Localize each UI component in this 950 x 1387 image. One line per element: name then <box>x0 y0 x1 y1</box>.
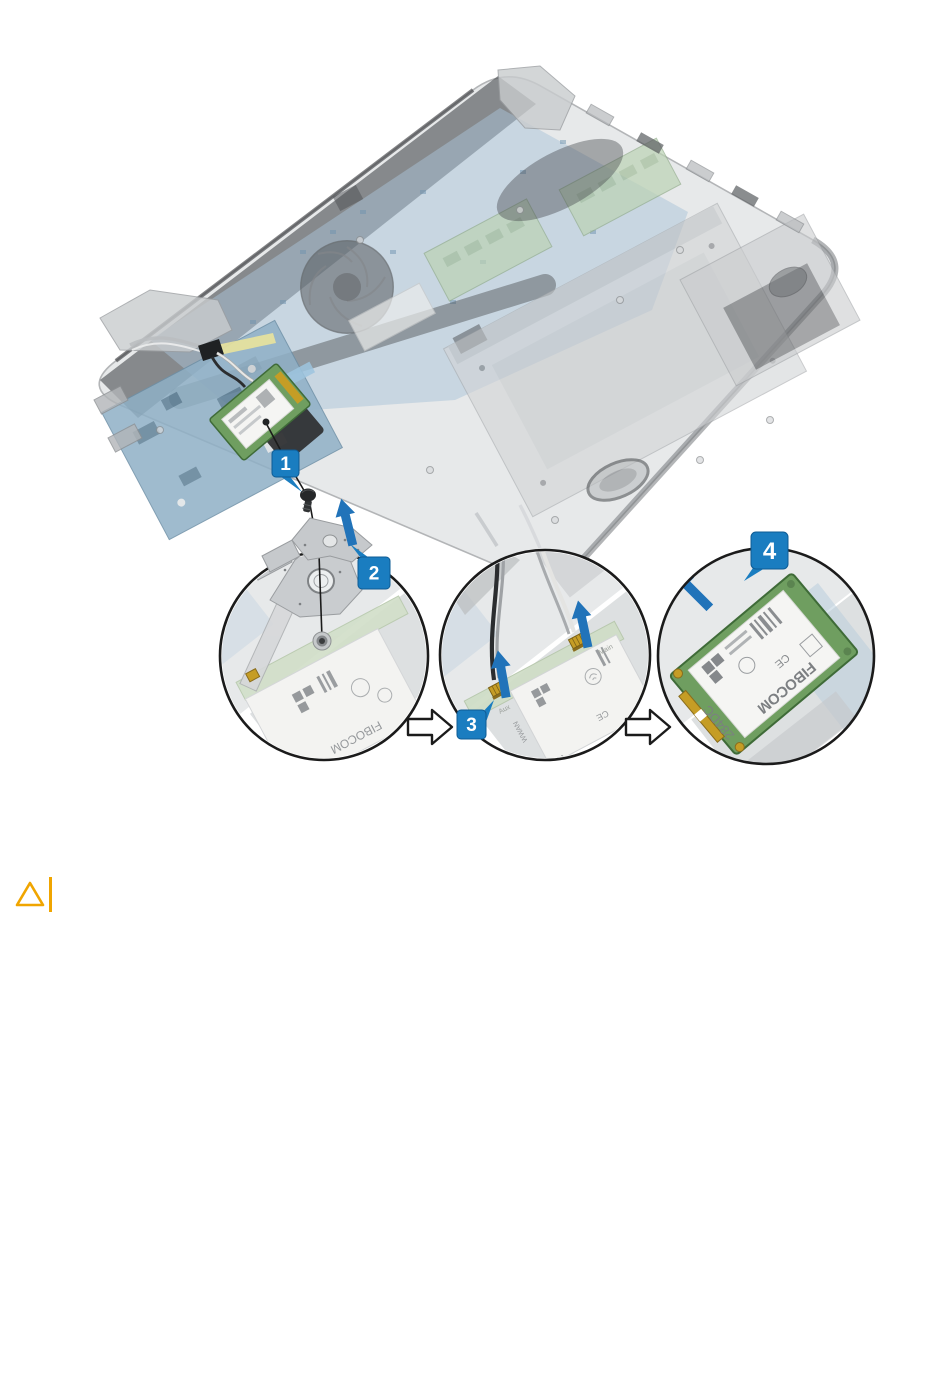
callout-3-label: 3 <box>466 715 477 736</box>
card-screw-hole <box>263 419 270 426</box>
screw <box>300 489 316 513</box>
zoom1-card-model-text: 284DC <box>297 761 321 794</box>
zoom1-screw-seat <box>313 632 331 650</box>
callout-1: 1 <box>272 450 302 492</box>
manual-page: 284DC FIBOCOM CE <box>0 0 950 1387</box>
figure-canvas: 284DC FIBOCOM CE <box>0 0 950 1387</box>
step-arrow-icon-1 <box>408 710 452 744</box>
callout-4-label: 4 <box>763 538 777 565</box>
callout-1-label: 1 <box>280 454 291 475</box>
laptop-illustration <box>94 66 860 578</box>
callout-2-label: 2 <box>369 564 380 585</box>
caution-triangle-icon <box>17 877 51 912</box>
